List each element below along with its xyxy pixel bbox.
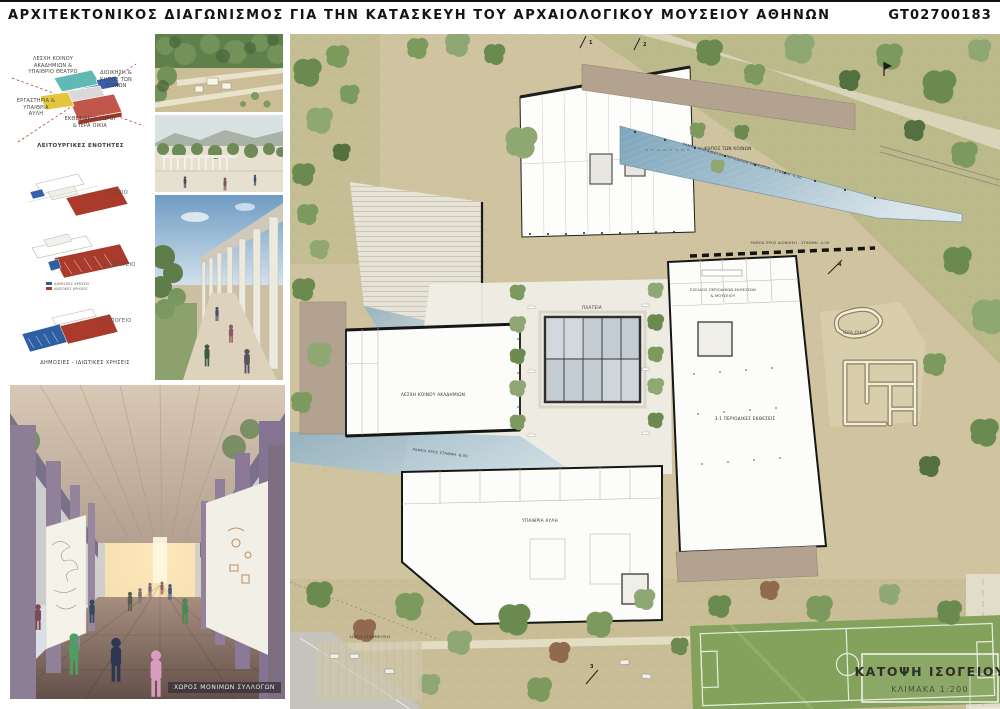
ground-floor-plan-panel: 1 2 3 4 ΚΗΠΟΣ ΤΩΝ ΚΟΙΝΩΝ ΡΑΜΠΑ ΑΠΟ ΑΙΘΟΥ… <box>290 34 1000 709</box>
annotation-courtyard: ΥΠΑΙΘΡΙΑ ΑΥΛΗ <box>521 518 558 523</box>
axon-diagrams-panel: ΙΣΟΓΕΙΟ Α' ΥΠΟΓΕΙΟ Β' ΥΠΟΓΕΙΟ ΔΗΜΟΣΙΕΣ Χ… <box>8 162 153 377</box>
exhibit-wall-right <box>206 481 268 655</box>
cloud <box>235 203 255 211</box>
exhibit-wall-left <box>46 515 86 649</box>
aerial-render-graphic <box>155 34 283 112</box>
legend-label: ΙΔΙΩΤΙΚΕΣ ΧΡΗΣΕΙΣ <box>54 287 88 291</box>
axon-diagrams <box>8 162 153 377</box>
legend-swatch-private <box>46 287 52 290</box>
concept-caption: ΛΕΙΤΟΥΡΓΙΚΕΣ ΕΝΟΤΗΤΕΣ <box>33 143 128 149</box>
concept-diagram <box>8 34 153 160</box>
bright-exit <box>153 537 167 583</box>
section-mark-label: 2 <box>643 42 647 48</box>
concept-label-left: ΕΡΓΑΣΤΗΡΙΑ & ΥΠΑΙΘΡΙΑ ΑΥΛΗ <box>16 98 56 118</box>
legend-label: ΔΗΜΟΣΙΕΣ ΧΡΗΣΕΙΣ <box>54 282 89 286</box>
annotation-plaza: ΠΛΑΤΕΙΑ <box>582 305 602 310</box>
concept-diagram-panel: ΛΕΣΧΗ ΚΟΙΝΟΥ ΑΚΑΔΗΜΙΩΝ & ΥΠΑΙΘΡΙΟ ΘΕΑΤΡΟ… <box>8 34 153 160</box>
annotation-exhibitions: 3.1 ΠΕΡΙΟΔΙΚΕΣ ΕΚΘΕΣΕΙΣ <box>715 416 776 421</box>
legend-swatch-public <box>46 282 52 285</box>
concept-label-bottom: ΕΚΘΕΣΙΑΚΟΙ ΧΩΡΟΙ & ΙΕΡΑ ΟΙΚΙΑ <box>64 116 116 129</box>
axon-level-label: Β' ΥΠΟΓΕΙΟ <box>100 318 132 324</box>
annotation-entrance-1: ΕΙΣΟΔΟΣ ΠΕΡΙΟΔΙΚΩΝ ΕΚΘΕΣΕΩΝ <box>690 288 756 292</box>
axon-basement-b <box>22 309 118 352</box>
corner-pillar <box>268 445 285 699</box>
archaeological-ruins <box>820 302 925 427</box>
render-caption: ΧΩΡΟΣ ΜΟΝΙΜΩΝ ΣΥΛΛΟΓΩΝ <box>168 682 281 693</box>
colonnade-render-graphic <box>155 115 283 192</box>
concept-label-right: ΔΙΟΙΚΗΣΗ & ΚΗΠΟΣ ΤΩΝ ΚΟΙΝΩΝ <box>96 70 136 90</box>
thumbnail-aerial-render <box>155 34 283 112</box>
annotation-academy-club: ΛΕΣΧΗ ΚΟΙΝΟΥ ΑΚΑΔΗΜΙΩΝ <box>401 392 465 397</box>
section-mark-label: 4 <box>838 262 842 268</box>
section-mark-label: 3 <box>590 664 594 670</box>
axon-caption: ΔΗΜΟΣΙΕΣ - ΙΔΙΩΤΙΚΕΣ ΧΡΗΣΕΙΣ <box>30 360 140 366</box>
main-interior-render: ΧΩΡΟΣ ΜΟΝΙΜΩΝ ΣΥΛΛΟΓΩΝ <box>10 385 285 699</box>
annotation-ramp-admin: ΡΑΜΠΑ ΠΡΟΣ ΔΙΟΙΚΗΣΗ - ΣΤΑΘΜΗ -4.00 <box>751 241 830 245</box>
plaza-skylight <box>540 312 645 407</box>
portico-render-graphic <box>155 195 283 380</box>
axon-level-label: Α' ΥΠΟΓΕΙΟ <box>104 262 136 268</box>
annotation-entrance-2: & ΜΟΥΣΕΙΟΥ <box>711 294 736 298</box>
annotation-parking: ΧΩΡΟΣ ΣΤΑΘΜΕΥΣΗΣ <box>349 635 391 639</box>
axon-level-label: ΙΣΟΓΕΙΟ <box>106 190 128 196</box>
legend-row: ΙΔΙΩΤΙΚΕΣ ΧΡΗΣΕΙΣ <box>46 287 89 292</box>
interior-render-graphic <box>10 385 285 699</box>
concept-label-top-left: ΛΕΣΧΗ ΚΟΙΝΟΥ ΑΚΑΔΗΜΙΩΝ & ΥΠΑΙΘΡΙΟ ΘΕΑΤΡΟ <box>22 56 84 76</box>
mocha-plate-south <box>676 546 818 582</box>
board-code: GT02700183 <box>888 8 992 23</box>
plan-scale: ΚΛΙΜΑΚΑ 1:200 <box>891 685 968 694</box>
thumbnail-colonnade-render <box>155 115 283 192</box>
plan-title-block: ΚΑΤΟΨΗ ΙΣΟΓΕΙΟΥ ΚΛΙΜΑΚΑ 1:200 <box>854 654 1000 708</box>
thumbnail-portico-render <box>155 195 283 380</box>
axon-legend: ΔΗΜΟΣΙΕΣ ΧΡΗΣΕΙΣ ΙΔΙΩΤΙΚΕΣ ΧΡΗΣΕΙΣ <box>46 282 89 293</box>
cloud <box>181 212 209 222</box>
ground-floor-plan: 1 2 3 4 ΚΗΠΟΣ ΤΩΝ ΚΟΙΝΩΝ ΡΑΜΠΑ ΑΠΟ ΑΙΘΟΥ… <box>290 34 1000 709</box>
competition-board: ΑΡΧΙΤΕΚΤΟΝΙΚΟΣ ΔΙΑΓΩΝΙΣΜΟΣ ΓΙΑ ΤΗΝ ΚΑΤΑΣ… <box>0 0 1000 709</box>
annotation-sacred-house: ΙΕΡΑ ΟΙΚΙΑ <box>843 330 867 335</box>
board-title: ΑΡΧΙΤΕΚΤΟΝΙΚΟΣ ΔΙΑΓΩΝΙΣΜΟΣ ΓΙΑ ΤΗΝ ΚΑΤΑΣ… <box>8 8 831 23</box>
section-mark-label: 1 <box>589 40 593 46</box>
portico-roof <box>161 155 237 158</box>
axon-basement-a <box>32 234 130 278</box>
plan-title: ΚΑΤΟΨΗ ΙΣΟΓΕΙΟΥ <box>854 664 1000 679</box>
